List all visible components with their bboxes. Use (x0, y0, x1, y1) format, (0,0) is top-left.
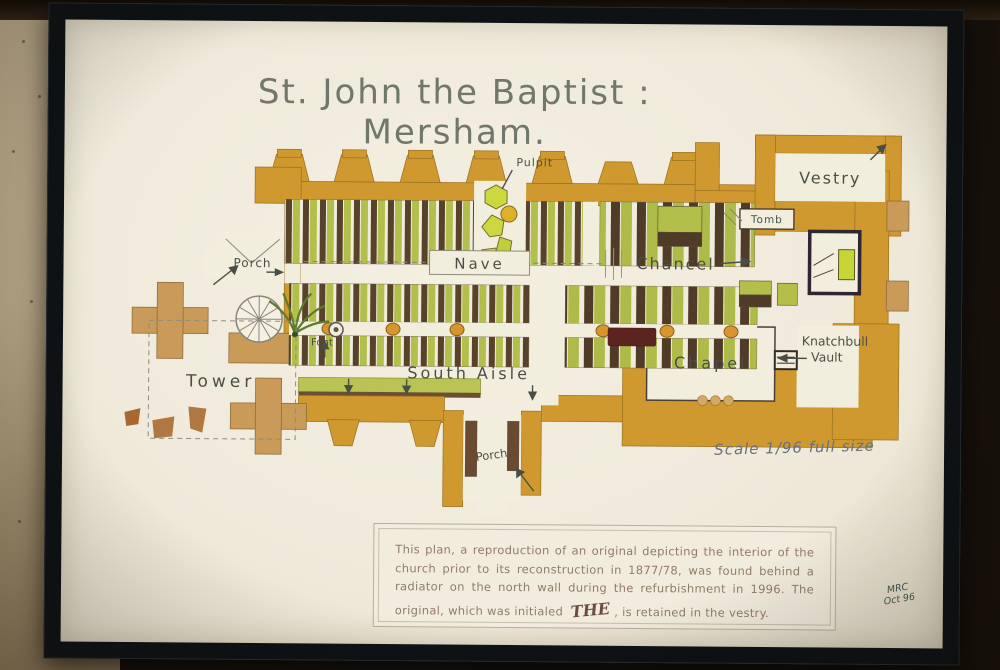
chapel-label: Chapel (674, 353, 748, 373)
picture-frame: St. John the Baptist : Mersham. (43, 2, 964, 665)
caption-panel: This plan, a reproduction of an original… (373, 523, 837, 631)
chancel-label: Chancel (636, 254, 714, 274)
south-aisle-label: South Aisle (407, 363, 530, 383)
tower-rubble (124, 406, 206, 439)
south-porch-bench (465, 421, 477, 477)
font-label: Font (311, 337, 333, 348)
south-porch-bench (507, 421, 519, 471)
wall-speck (12, 150, 15, 153)
wall-speck (22, 40, 25, 43)
tomb-label: Tomb (750, 214, 783, 226)
knatchbull-vault-label-line1: Knatchbull (802, 333, 868, 349)
wall-speck (30, 300, 33, 303)
wall-speck (18, 520, 21, 523)
knatchbull-vault-label-line2: Vault (811, 349, 843, 364)
tower-label: Tower (185, 371, 255, 392)
south-pew-block-upper (289, 283, 529, 323)
altar (838, 250, 854, 280)
caption-after: , is retained in the vestry. (614, 605, 769, 620)
nave-label: Nave (454, 255, 505, 273)
south-box-pews-upper (565, 285, 757, 325)
north-porch-label: Porch (233, 256, 271, 270)
organ (608, 328, 656, 346)
wall-speck (38, 95, 41, 98)
caption-text: This plan, a reproduction of an original… (378, 528, 832, 626)
chapel-scallops (697, 396, 733, 406)
plan-paper: St. John the Baptist : Mersham. (61, 20, 948, 649)
vestry-label: Vestry (799, 168, 861, 187)
north-buttresses (269, 149, 704, 184)
original-initials: THE (566, 595, 616, 625)
pulpit-label: Pulpit (516, 156, 553, 169)
